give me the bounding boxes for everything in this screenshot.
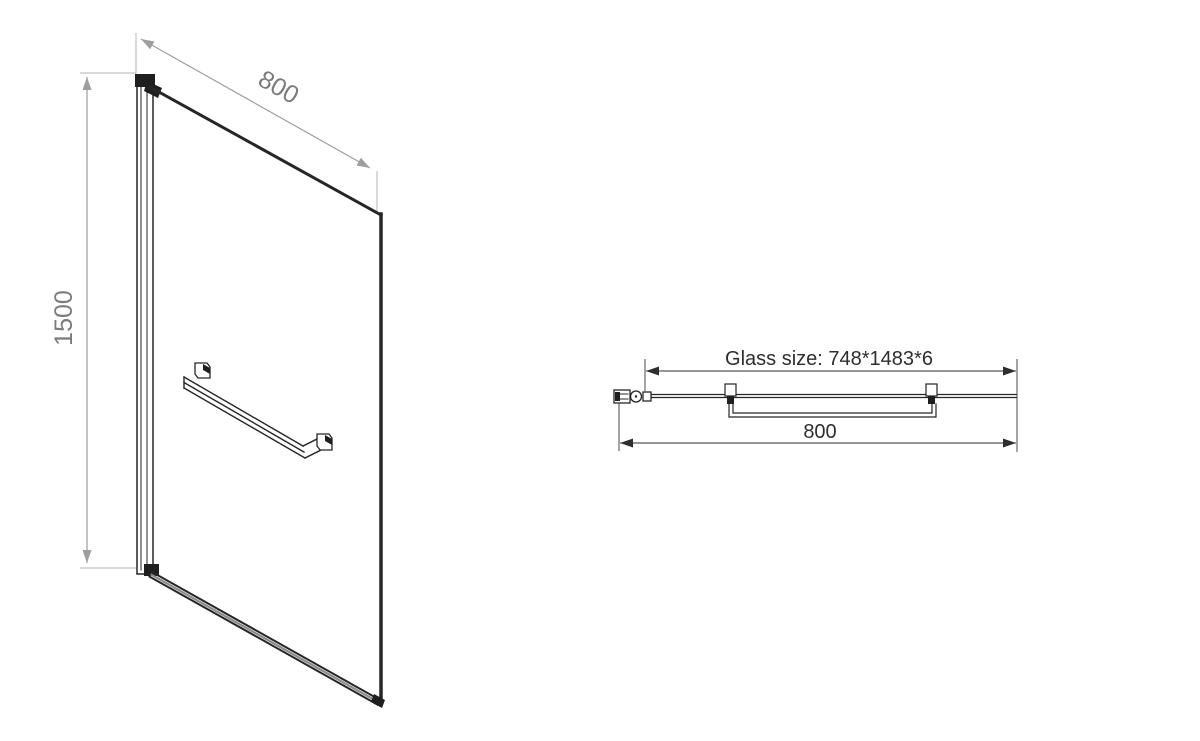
- towel-bar-rail-line-1: [184, 377, 303, 446]
- technical-drawing: 800 1500: [0, 0, 1200, 741]
- towel-bar-right-bend-top: [303, 439, 317, 446]
- wall-profile: [137, 76, 153, 574]
- width-dimension-line: [141, 39, 370, 168]
- technical-drawing-page: 800 1500: [0, 0, 1200, 741]
- top-width-dimension-label: 800: [803, 421, 836, 443]
- towel-bar-right-mount-grip: [928, 396, 935, 404]
- towel-bar-rail-line-3: [184, 388, 305, 458]
- height-dimension-label: 1500: [50, 290, 78, 346]
- bottom-seal-lower-line: [150, 577, 378, 705]
- glass-panel-top-edge: [150, 87, 381, 215]
- hinge-pivot-center: [635, 395, 637, 397]
- bottom-seal-upper-line: [152, 572, 380, 700]
- wall-bracket-shading: [615, 392, 620, 401]
- front-view: 800 1500: [50, 33, 385, 708]
- towel-bar-left-mount-top: [725, 384, 736, 396]
- wall-hinge-assembly: [614, 390, 651, 403]
- towel-bar-front: [184, 363, 332, 458]
- towel-bar-left-mount-grip: [727, 396, 734, 404]
- bottom-seal-middle-line: [151, 574, 379, 702]
- towel-bar-outline-outer: [729, 404, 936, 417]
- towel-bar-right-bend-bottom: [305, 450, 321, 458]
- towel-bar-rail-line-2: [184, 383, 304, 453]
- towel-bar-right-mount-top: [926, 384, 937, 396]
- glass-clamp-top-view: [643, 392, 651, 401]
- width-dimension-label: 800: [253, 65, 303, 110]
- top-view: Glass size: 748*1483*6 800: [614, 348, 1017, 452]
- glass-size-label: Glass size: 748*1483*6: [725, 348, 933, 370]
- towel-bar-outline-inner: [733, 404, 932, 413]
- towel-bar-top: [725, 384, 937, 417]
